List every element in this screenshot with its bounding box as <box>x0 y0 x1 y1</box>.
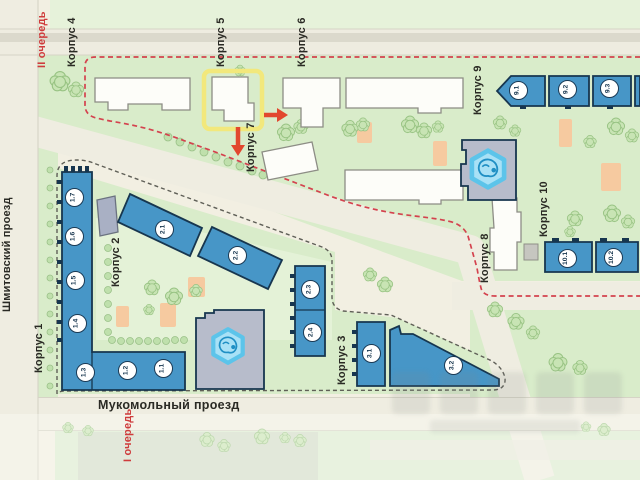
unit-badge-1.7[interactable]: 1.7 <box>65 188 84 207</box>
unit-badge-9.3[interactable]: 9.3 <box>600 79 619 98</box>
unit-badge-number: 3.1 <box>368 348 375 357</box>
site-plan-map: II очередь I очередь Шмитовский проезд М… <box>0 0 640 480</box>
unit-badge-1.2[interactable]: 1.2 <box>118 361 137 380</box>
unit-badge-number: 2.2 <box>234 250 241 259</box>
korpus-label-6: Корпус 6 <box>296 17 308 67</box>
unit-badge-number: 10.2 <box>610 250 617 263</box>
unit-badge-2.4[interactable]: 2.4 <box>303 323 322 342</box>
phase-1-label: I очередь <box>122 409 134 462</box>
korpus-label-9: Корпус 9 <box>472 65 484 115</box>
unit-badge-9.1[interactable]: 9.1 <box>509 81 528 100</box>
street-label-mukomolny: Мукомольный проезд <box>98 398 240 412</box>
unit-badge-2.3[interactable]: 2.3 <box>301 280 320 299</box>
unit-badge-3.1[interactable]: 3.1 <box>362 344 381 363</box>
unit-badge-10.1[interactable]: 10.1 <box>558 249 577 268</box>
unit-badge-1.5[interactable]: 1.5 <box>66 271 85 290</box>
unit-badge-number: 9.3 <box>606 83 613 92</box>
street-label-shmitovsky: Шмитовский проезд <box>1 197 13 312</box>
unit-badge-2.2[interactable]: 2.2 <box>228 246 247 265</box>
phase-2-label: II очередь <box>36 11 48 68</box>
korpus-label-5: Корпус 5 <box>215 17 227 67</box>
labels-layer: II очередь I очередь Шмитовский проезд М… <box>0 0 640 480</box>
korpus-label-7: Корпус 7 <box>245 122 257 172</box>
unit-badge-number: 2.3 <box>307 284 314 293</box>
unit-badge-2.1[interactable]: 2.1 <box>155 220 174 239</box>
korpus-label-4: Корпус 4 <box>66 17 78 67</box>
unit-badge-number: 2.4 <box>309 327 316 336</box>
unit-badge-1.1[interactable]: 1.1 <box>154 359 173 378</box>
unit-badge-number: 2.1 <box>161 224 168 233</box>
korpus-label-10: Корпус 10 <box>538 181 550 237</box>
korpus-label-1: Корпус 1 <box>33 323 45 373</box>
korpus-label-8: Корпус 8 <box>479 233 491 283</box>
unit-badge-number: 1.6 <box>71 231 78 240</box>
unit-badge-1.6[interactable]: 1.6 <box>65 227 84 246</box>
unit-badge-1.4[interactable]: 1.4 <box>68 314 87 333</box>
unit-badge-number: 1.3 <box>82 367 89 376</box>
korpus-label-3: Корпус 3 <box>336 335 348 385</box>
korpus-label-2: Корпус 2 <box>110 237 122 287</box>
unit-badge-number: 3.2 <box>450 360 457 369</box>
unit-badge-10.2[interactable]: 10.2 <box>604 248 623 267</box>
unit-badge-number: 1.2 <box>124 365 131 374</box>
unit-badge-number: 1.4 <box>74 318 81 327</box>
unit-badge-3.2[interactable]: 3.2 <box>444 356 463 375</box>
unit-badge-number: 9.1 <box>515 85 522 94</box>
unit-badge-number: 9.2 <box>564 84 571 93</box>
unit-badge-9.2[interactable]: 9.2 <box>558 80 577 99</box>
unit-badge-number: 1.5 <box>72 275 79 284</box>
unit-badge-number: 10.1 <box>564 251 571 264</box>
unit-badge-1.3[interactable]: 1.3 <box>76 363 95 382</box>
unit-badge-number: 1.1 <box>160 363 167 372</box>
unit-badge-number: 1.7 <box>71 192 78 201</box>
